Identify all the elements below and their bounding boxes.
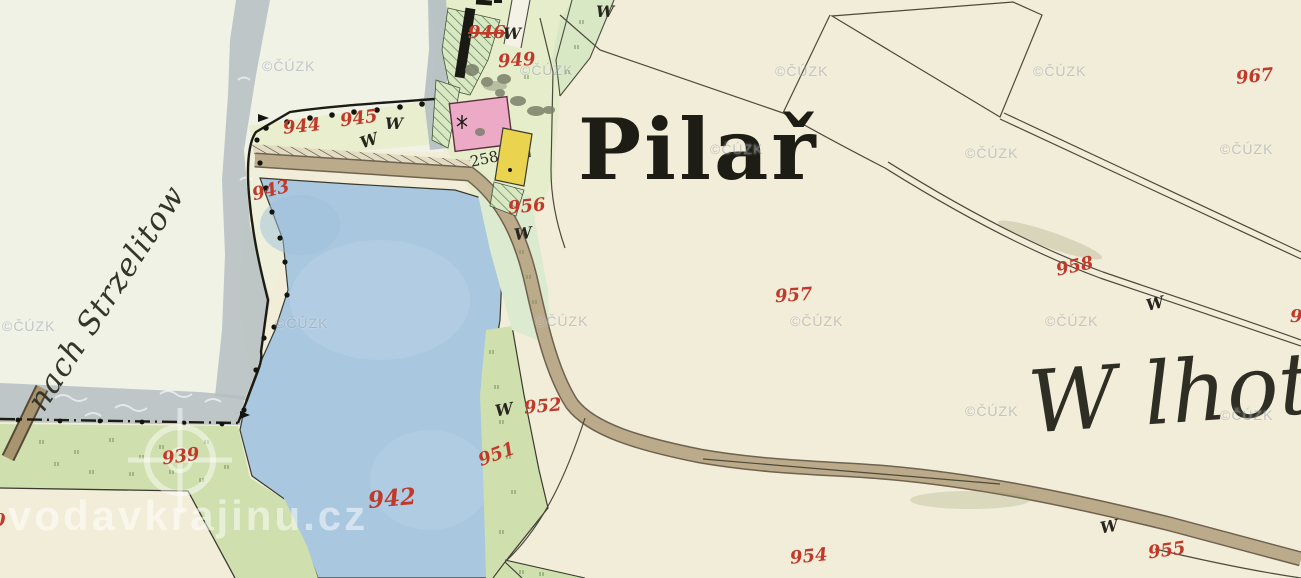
pond-shadow <box>260 195 340 255</box>
cadastral-map: Pilař W lhotka nach Strzelitow 946 949 9… <box>0 0 1301 578</box>
pond-highlight <box>370 430 490 530</box>
pond-highlight <box>290 240 470 360</box>
map-artwork <box>0 0 1301 578</box>
